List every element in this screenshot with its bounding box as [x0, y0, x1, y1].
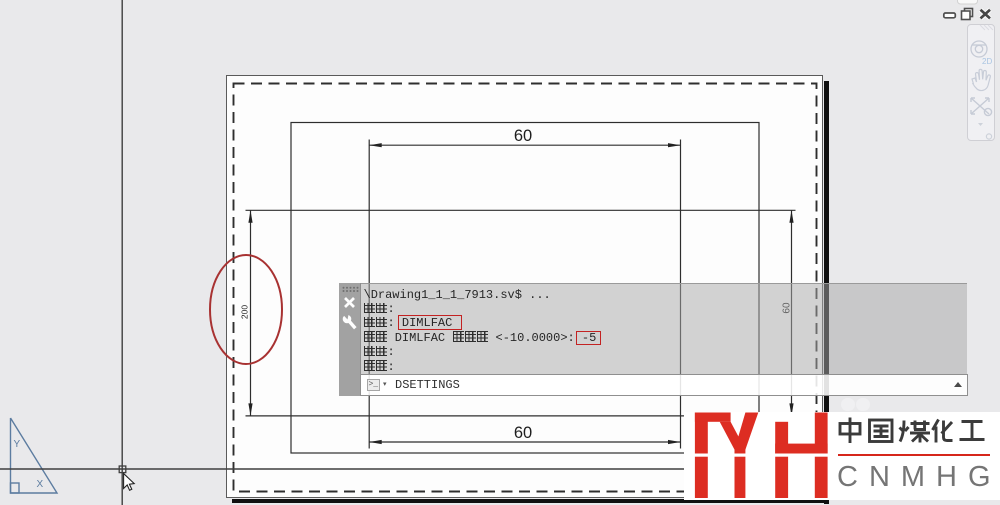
svg-text:60: 60	[514, 127, 532, 145]
svg-text:Y: Y	[14, 439, 21, 450]
svg-text:200: 200	[240, 305, 250, 319]
svg-text:X: X	[37, 479, 44, 490]
svg-text:2D: 2D	[982, 57, 992, 66]
svg-text:60: 60	[514, 424, 532, 442]
